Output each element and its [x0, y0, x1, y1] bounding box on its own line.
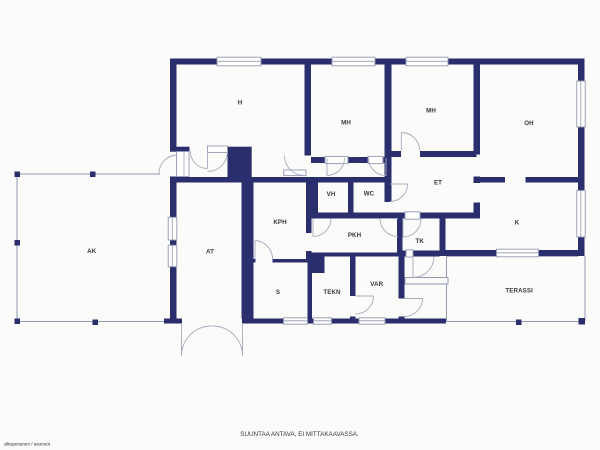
svg-text:TK: TK — [415, 238, 424, 245]
svg-text:VH: VH — [327, 191, 336, 198]
svg-text:SUUNTAA ANTAVA, EI MITTAKAAVAS: SUUNTAA ANTAVA, EI MITTAKAAVASSA. — [240, 431, 359, 438]
svg-text:PKH: PKH — [348, 232, 362, 239]
svg-text:AT: AT — [206, 249, 214, 256]
svg-text:ET: ET — [434, 180, 442, 187]
svg-text:TERASSI: TERASSI — [505, 288, 533, 295]
svg-text:TEKN: TEKN — [323, 289, 341, 296]
svg-text:AK: AK — [87, 248, 97, 255]
svg-text:WC: WC — [364, 191, 375, 198]
svg-text:MH: MH — [341, 120, 351, 127]
svg-text:S: S — [276, 289, 280, 296]
svg-text:VAR: VAR — [370, 281, 383, 288]
svg-text:alkuperainen / asunnot: alkuperainen / asunnot — [4, 442, 51, 448]
svg-text:OH: OH — [524, 120, 534, 127]
svg-text:KPH: KPH — [273, 219, 287, 226]
svg-text:MH: MH — [426, 108, 436, 115]
svg-text:K: K — [515, 220, 520, 227]
svg-text:H: H — [238, 100, 243, 107]
